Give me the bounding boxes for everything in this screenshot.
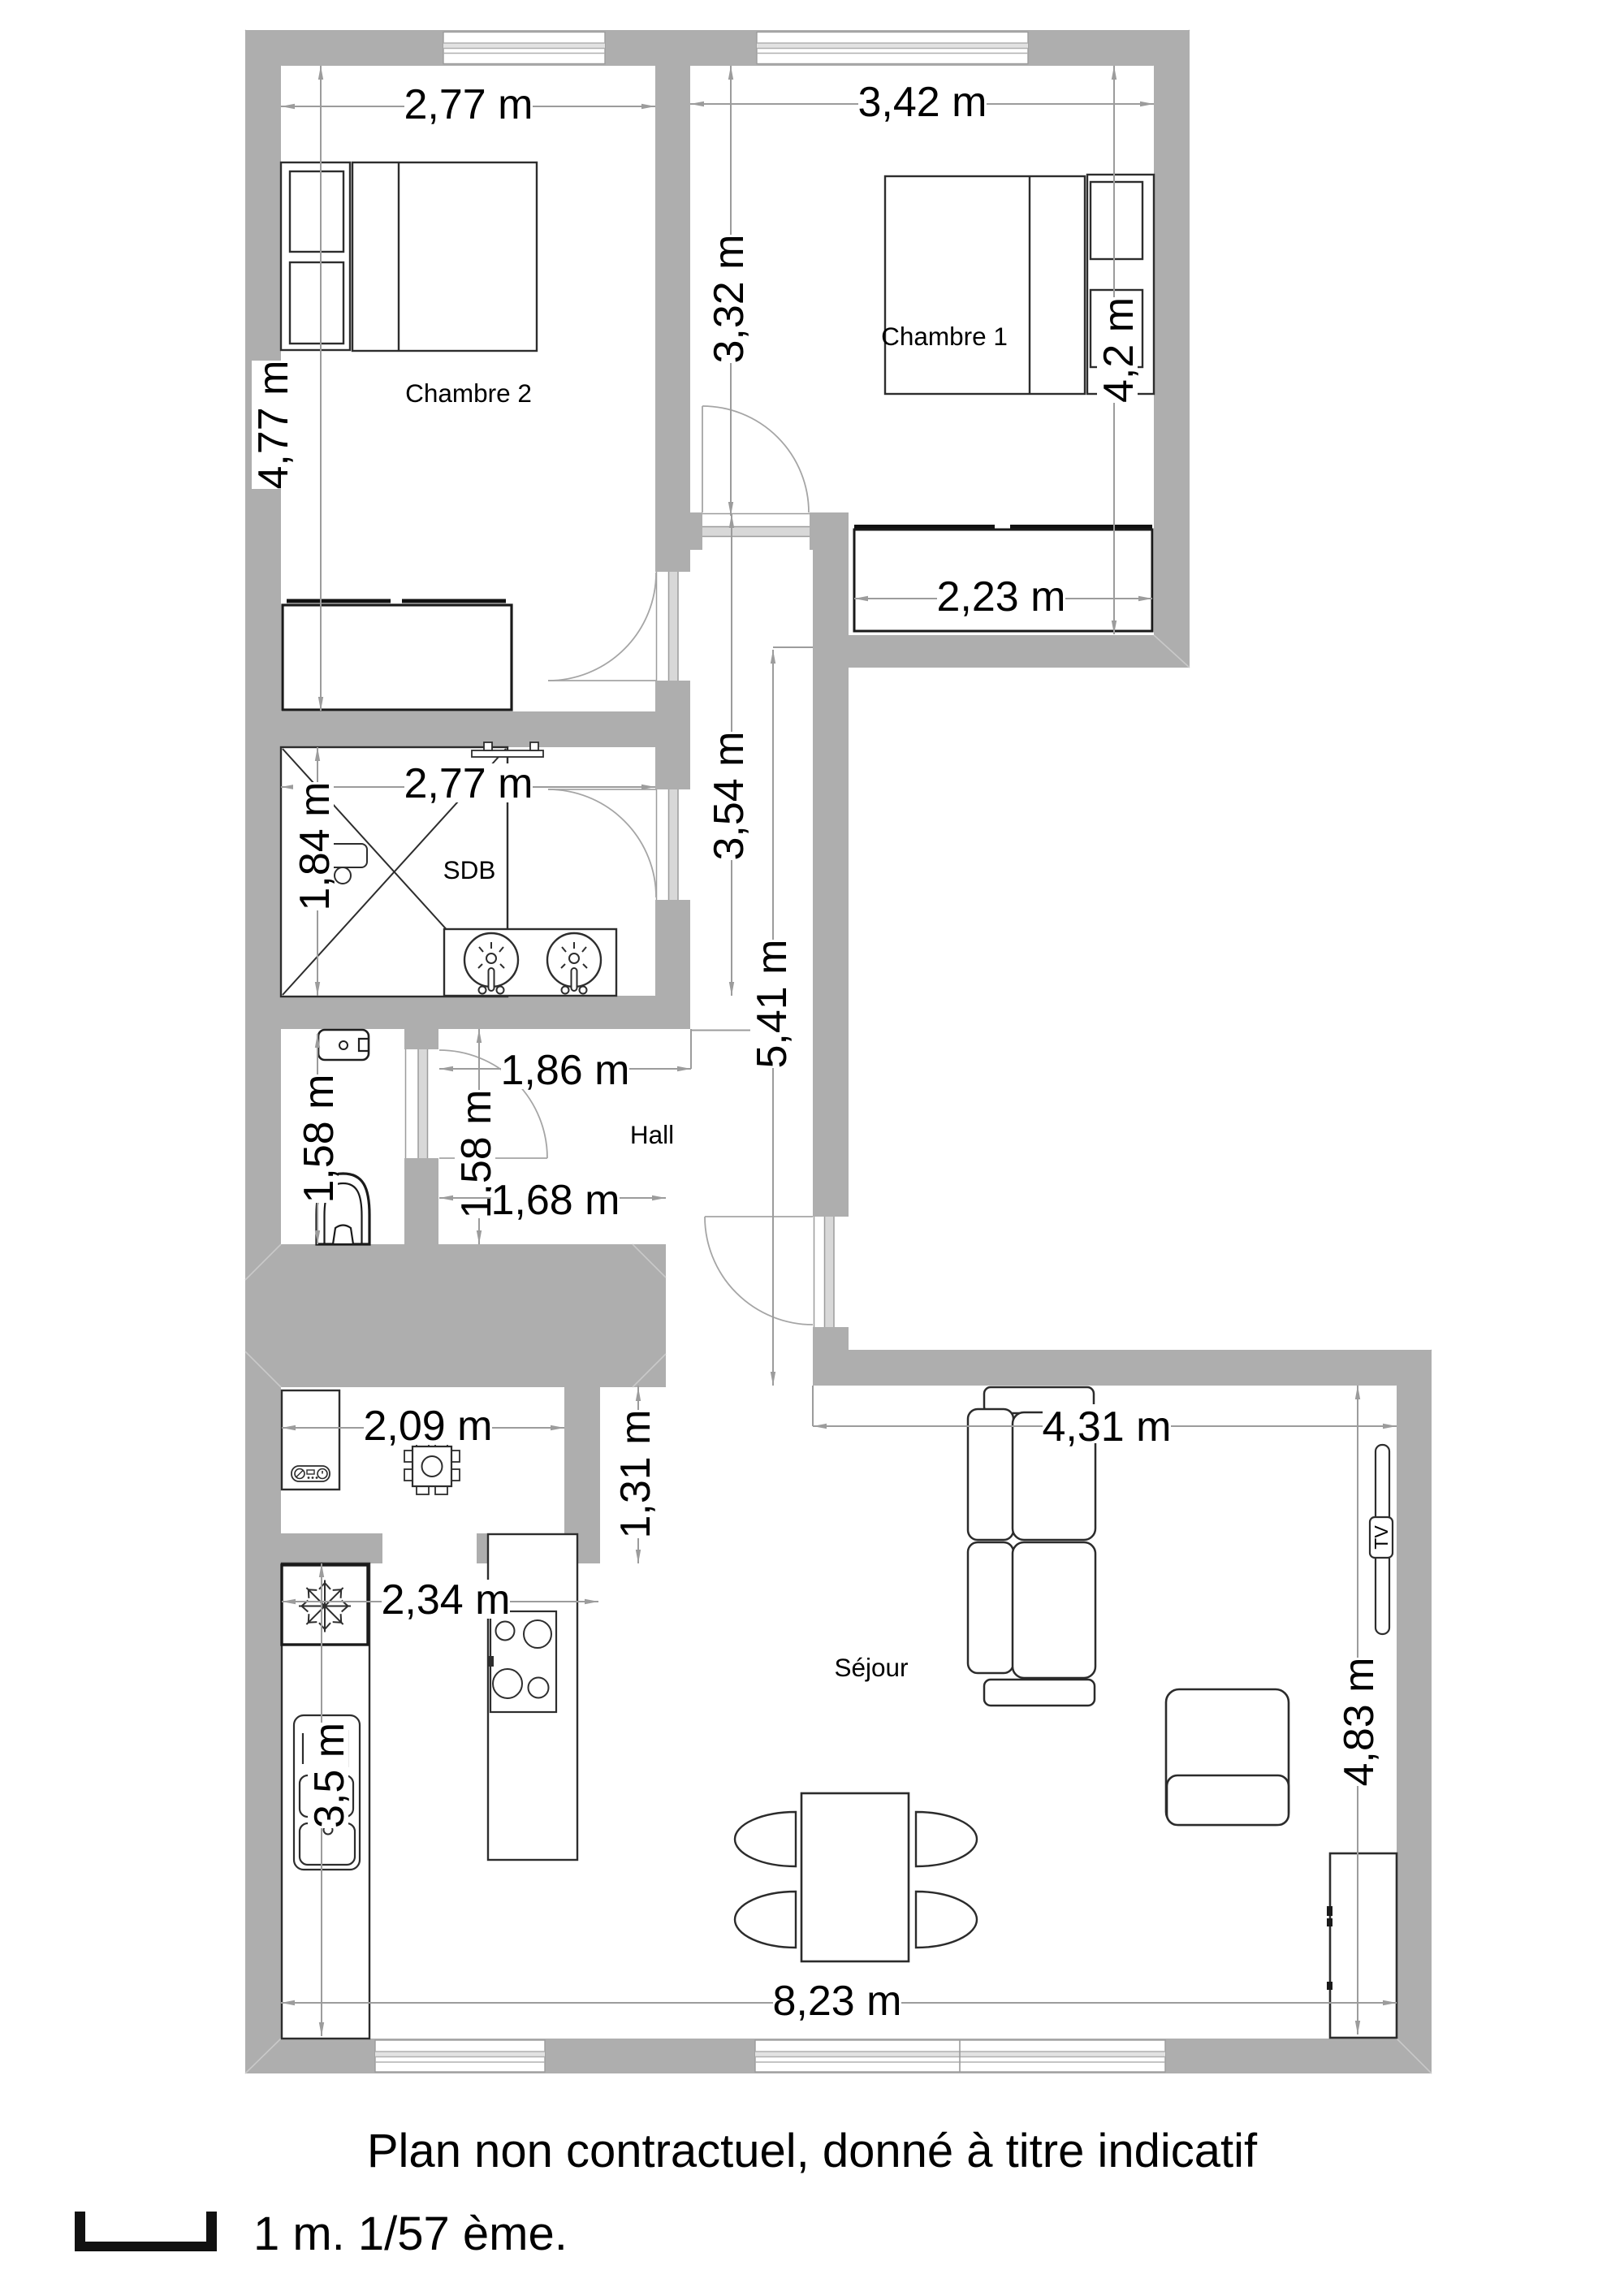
svg-text:1,86 m: 1,86 m <box>501 1047 630 1094</box>
svg-text:Chambre 1: Chambre 1 <box>881 322 1008 351</box>
svg-text:1 m. 1/57 ème.: 1 m. 1/57 ème. <box>253 2207 568 2260</box>
svg-text:2,23 m: 2,23 m <box>937 573 1066 620</box>
svg-text:2,34 m: 2,34 m <box>382 1576 511 1624</box>
svg-text:1,68 m: 1,68 m <box>491 1177 620 1224</box>
svg-text:3,5 m: 3,5 m <box>306 1723 353 1828</box>
svg-text:4,31 m: 4,31 m <box>1043 1403 1172 1451</box>
svg-text:SDB: SDB <box>443 855 496 884</box>
svg-text:3,42 m: 3,42 m <box>858 79 987 126</box>
svg-text:1,31 m: 1,31 m <box>612 1410 659 1539</box>
svg-text:3,54 m: 3,54 m <box>706 732 753 861</box>
svg-text:8,23 m: 8,23 m <box>773 1978 902 2025</box>
svg-text:2,09 m: 2,09 m <box>364 1403 493 1450</box>
svg-text:3,32 m: 3,32 m <box>706 235 753 364</box>
svg-text:5,41 m: 5,41 m <box>749 940 796 1069</box>
svg-text:4,77 m: 4,77 m <box>250 361 297 490</box>
svg-text:Plan non contractuel, donné à: Plan non contractuel, donné à titre indi… <box>367 2125 1258 2177</box>
svg-text:1,58 m: 1,58 m <box>296 1074 343 1204</box>
svg-text:Séjour: Séjour <box>834 1653 908 1682</box>
svg-text:4,2 m: 4,2 m <box>1095 297 1142 403</box>
svg-text:2,77 m: 2,77 m <box>404 760 533 807</box>
svg-text:Hall: Hall <box>630 1120 674 1149</box>
svg-text:2,77 m: 2,77 m <box>404 81 533 128</box>
svg-text:1,84 m: 1,84 m <box>292 782 339 911</box>
svg-text:Chambre 2: Chambre 2 <box>405 378 532 408</box>
svg-text:4,83 m: 4,83 m <box>1336 1658 1383 1787</box>
svg-text:TV: TV <box>1371 1525 1392 1550</box>
